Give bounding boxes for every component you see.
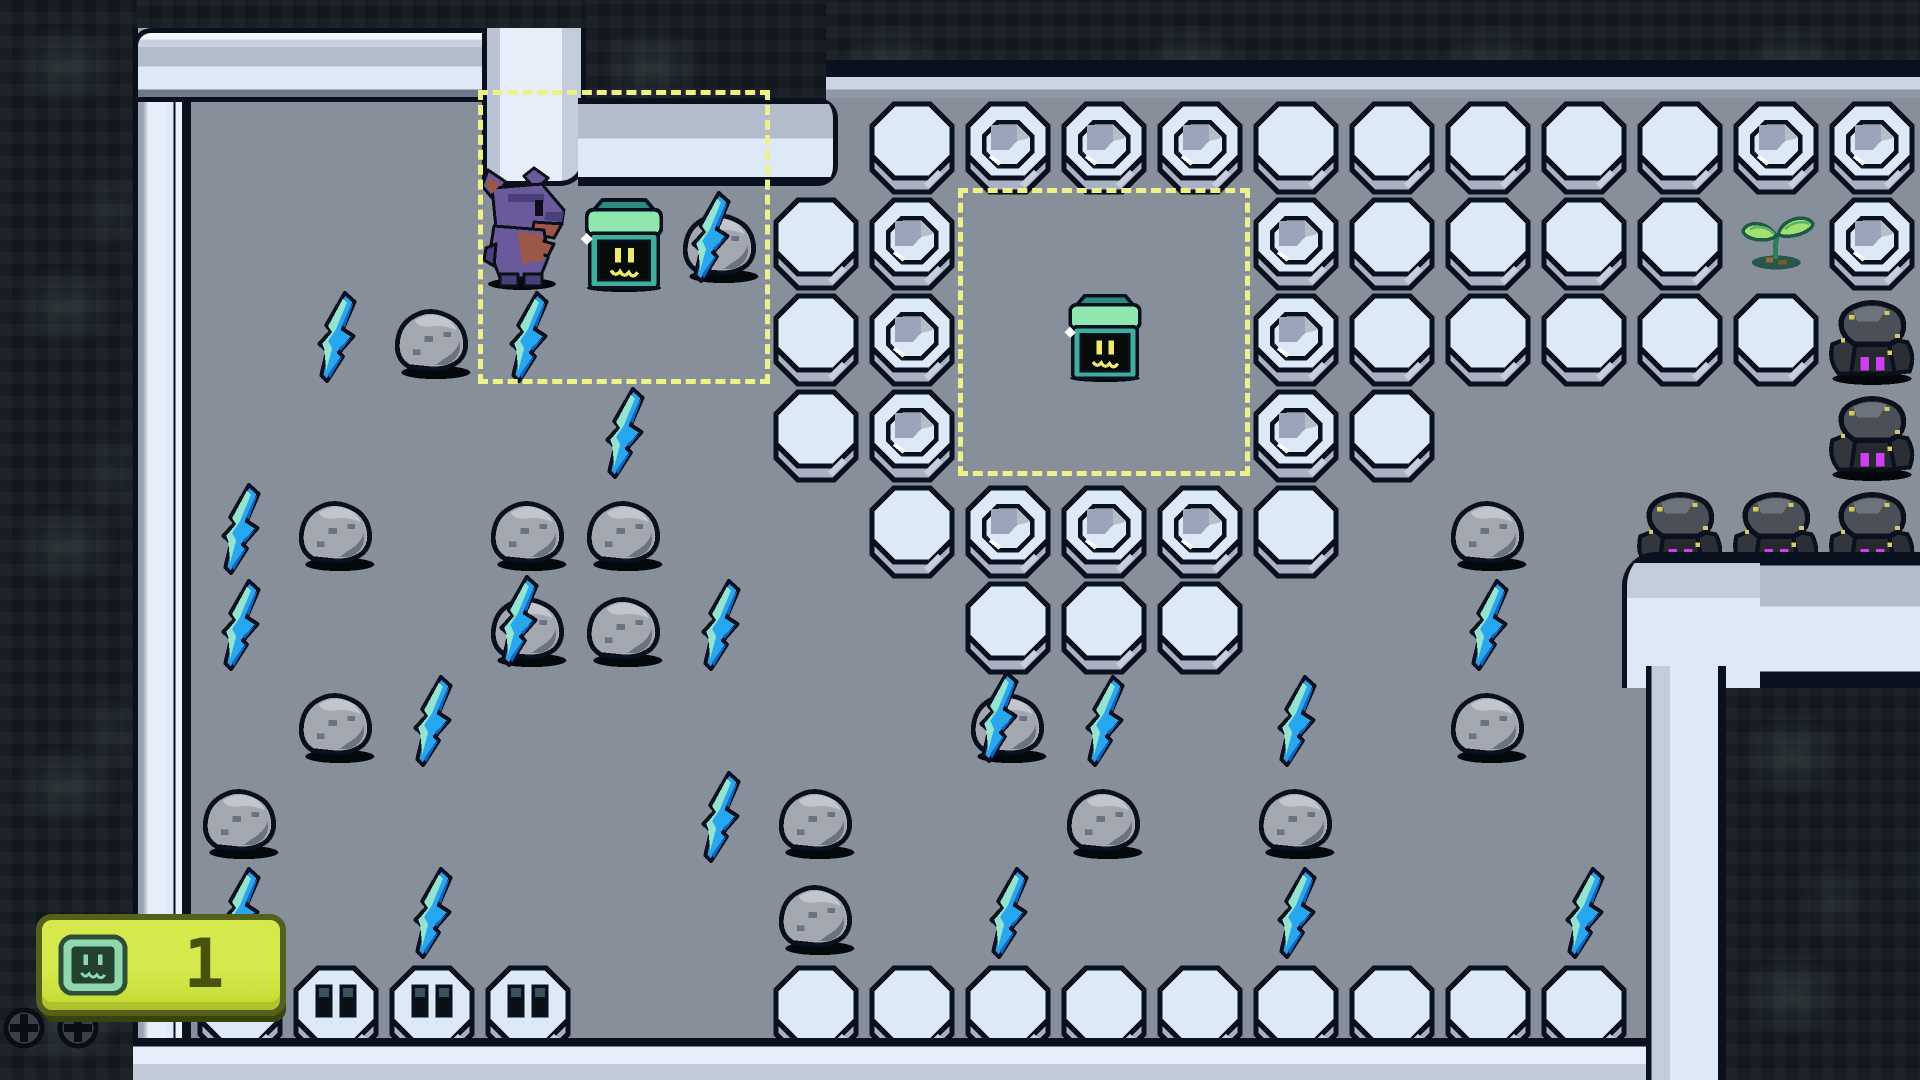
socket-floor-tile[interactable] [1824, 98, 1920, 198]
selection-box [478, 90, 770, 384]
lightning-bolt[interactable] [216, 482, 264, 576]
floor-tile[interactable] [1536, 194, 1632, 294]
lightning-bolt[interactable] [974, 670, 1022, 764]
lightning-bolt[interactable] [216, 578, 264, 672]
floor-tile[interactable] [864, 98, 960, 198]
floor-tile[interactable] [1056, 578, 1152, 678]
socket-floor-tile[interactable] [864, 386, 960, 486]
socket-floor-tile[interactable] [1728, 98, 1824, 198]
floor-tile[interactable] [1344, 194, 1440, 294]
rock[interactable] [1058, 770, 1150, 862]
floor-tile[interactable] [1728, 290, 1824, 390]
rock[interactable] [578, 578, 670, 670]
socket-floor-tile[interactable] [1056, 482, 1152, 582]
floor-tile[interactable] [1440, 98, 1536, 198]
lightning-bolt[interactable] [408, 674, 456, 768]
socket-floor-tile[interactable] [864, 290, 960, 390]
wall-bottom [133, 1038, 1713, 1080]
floor-tile[interactable] [864, 482, 960, 582]
lightning-bolt[interactable] [1464, 578, 1512, 672]
socket-floor-tile[interactable] [864, 194, 960, 294]
socket-floor-tile[interactable] [960, 98, 1056, 198]
selection-box [958, 188, 1250, 476]
rock[interactable] [290, 482, 382, 574]
socket-floor-tile[interactable] [1824, 194, 1920, 294]
lightning-bolt[interactable] [1272, 866, 1320, 960]
terminal-chest-icon [58, 934, 128, 996]
floor-tile[interactable] [1344, 386, 1440, 486]
cave-background [137, 0, 586, 30]
cave-background [826, 0, 1920, 62]
rock[interactable] [578, 482, 670, 574]
socket-floor-tile[interactable] [1248, 194, 1344, 294]
rock[interactable] [194, 770, 286, 862]
socket-floor-tile[interactable] [1152, 98, 1248, 198]
floor-tile[interactable] [1632, 194, 1728, 294]
wall-br-vert [1646, 666, 1726, 1080]
floor-tile[interactable] [1536, 98, 1632, 198]
socket-floor-tile[interactable] [960, 482, 1056, 582]
lightning-bolt[interactable] [312, 290, 360, 384]
floor-tile[interactable] [1632, 98, 1728, 198]
rock[interactable] [1442, 674, 1534, 766]
floor-tile[interactable] [768, 386, 864, 486]
hud-inventory-badge[interactable]: 1 [36, 914, 286, 1016]
rock[interactable] [482, 482, 574, 574]
floor-tile[interactable] [1248, 98, 1344, 198]
socket-floor-tile[interactable] [1056, 98, 1152, 198]
rock[interactable] [290, 674, 382, 766]
item-count: 1 [128, 926, 280, 1004]
floor-tile[interactable] [768, 194, 864, 294]
rock[interactable] [1442, 482, 1534, 574]
cave-background [586, 0, 826, 100]
floor-tile[interactable] [1440, 290, 1536, 390]
floor-tile[interactable] [1344, 290, 1440, 390]
lightning-bolt[interactable] [1272, 674, 1320, 768]
floor-tile[interactable] [1152, 578, 1248, 678]
screw-icon [2, 1006, 46, 1050]
rock[interactable] [770, 770, 862, 862]
floor-tile[interactable] [1440, 194, 1536, 294]
game-viewport: 1 [0, 0, 1920, 1080]
lightning-bolt[interactable] [408, 866, 456, 960]
lightning-bolt[interactable] [696, 770, 744, 864]
rock-spider-enemy[interactable] [1822, 286, 1920, 386]
floor-tile[interactable] [768, 290, 864, 390]
wall-band [826, 60, 1920, 98]
floor-tile[interactable] [1632, 290, 1728, 390]
lightning-bolt[interactable] [1560, 866, 1608, 960]
lightning-bolt[interactable] [600, 386, 648, 480]
floor-tile[interactable] [1248, 482, 1344, 582]
floor-tile[interactable] [1344, 98, 1440, 198]
lightning-bolt[interactable] [494, 574, 542, 668]
rock[interactable] [1250, 770, 1342, 862]
lightning-bolt[interactable] [1080, 674, 1128, 768]
floor-tile[interactable] [1536, 290, 1632, 390]
lightning-bolt[interactable] [984, 866, 1032, 960]
lightning-bolt[interactable] [696, 578, 744, 672]
rock[interactable] [386, 290, 478, 382]
cave-background [1726, 688, 1920, 1080]
socket-floor-tile[interactable] [1248, 386, 1344, 486]
rock[interactable] [770, 866, 862, 958]
socket-floor-tile[interactable] [1152, 482, 1248, 582]
rock-spider-enemy[interactable] [1822, 382, 1920, 482]
floor-tile[interactable] [960, 578, 1056, 678]
socket-floor-tile[interactable] [1248, 290, 1344, 390]
wall-br-horiz [1760, 552, 1920, 688]
sprout-plant[interactable] [1736, 196, 1820, 280]
